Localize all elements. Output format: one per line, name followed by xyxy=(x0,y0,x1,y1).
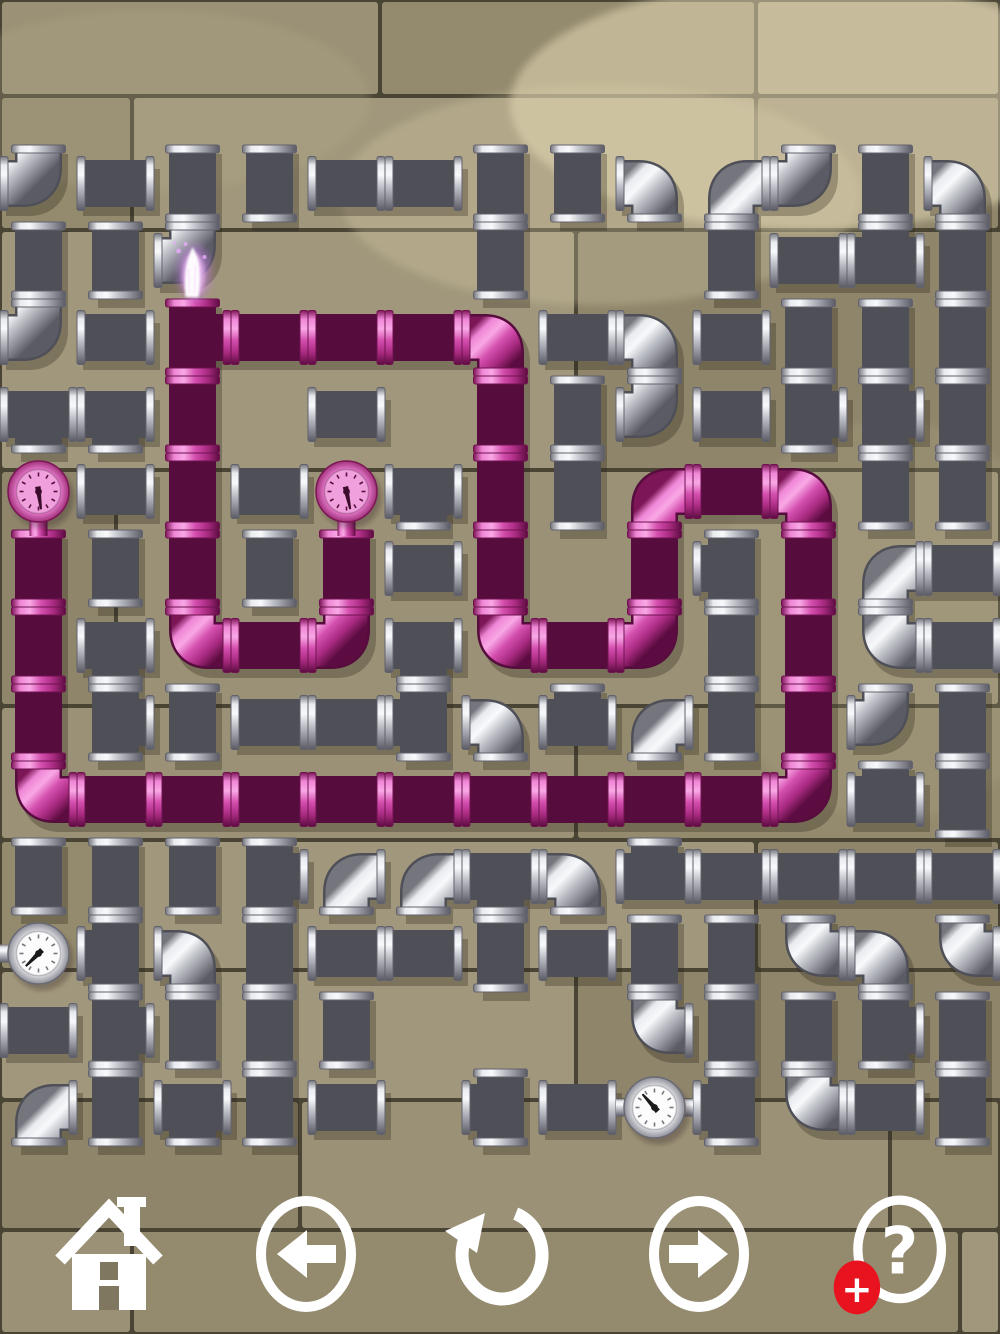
pipe-straight-vertical[interactable] xyxy=(89,838,143,924)
pipe-straight-horizontal[interactable] xyxy=(385,927,468,981)
pipe-straight-horizontal[interactable] xyxy=(770,234,853,288)
pipe-straight-vertical[interactable] xyxy=(936,299,990,385)
arrow-left-icon xyxy=(241,1189,371,1319)
pipe-straight-horizontal[interactable] xyxy=(693,388,776,442)
pipe-straight-horizontal[interactable] xyxy=(308,1081,391,1135)
pipe-straight-vertical[interactable] xyxy=(474,222,528,308)
pipe-straight-horizontal-pink[interactable] xyxy=(385,311,468,365)
pipe-straight-vertical[interactable] xyxy=(166,145,220,231)
pipe-straight-vertical[interactable] xyxy=(936,1069,990,1155)
pipe-straight-horizontal[interactable] xyxy=(847,850,930,904)
pipe-straight-vertical[interactable] xyxy=(243,145,297,231)
pipe-straight-vertical-pink[interactable] xyxy=(782,684,836,770)
pipe-straight-horizontal[interactable] xyxy=(770,850,853,904)
pipe-straight-vertical[interactable] xyxy=(859,453,913,539)
pipe-straight-vertical[interactable] xyxy=(89,530,143,616)
pipe-straight-horizontal-pink[interactable] xyxy=(385,773,468,827)
pipe-straight-vertical[interactable] xyxy=(705,222,759,308)
pipe-straight-vertical[interactable] xyxy=(166,838,220,924)
pipe-straight-vertical[interactable] xyxy=(320,992,374,1078)
pipe-straight-horizontal[interactable] xyxy=(0,1004,83,1058)
pipe-straight-vertical[interactable] xyxy=(782,299,836,385)
plus-glyph: + xyxy=(841,1268,872,1311)
pipe-straight-horizontal-pink[interactable] xyxy=(539,773,622,827)
pipe-straight-horizontal-pink[interactable] xyxy=(308,311,391,365)
pipe-straight-horizontal[interactable] xyxy=(308,388,391,442)
pipe-straight-vertical[interactable] xyxy=(243,530,297,616)
pipe-straight-vertical-pink[interactable] xyxy=(166,453,220,539)
pipe-straight-horizontal[interactable] xyxy=(231,696,314,750)
pipe-straight-vertical[interactable] xyxy=(859,299,913,385)
pipe-straight-horizontal-pink[interactable] xyxy=(231,311,314,365)
pipe-straight-horizontal-pink[interactable] xyxy=(693,773,776,827)
pipe-straight-vertical-pink[interactable] xyxy=(782,607,836,693)
pipe-straight-vertical[interactable] xyxy=(859,145,913,231)
pipe-straight-horizontal-pink[interactable] xyxy=(231,619,314,673)
pipe-straight-horizontal-pink[interactable] xyxy=(77,773,160,827)
pipe-straight-vertical[interactable] xyxy=(474,915,528,1001)
pipe-straight-horizontal[interactable] xyxy=(77,157,160,211)
pipe-straight-vertical[interactable] xyxy=(12,222,66,308)
pipe-straight-horizontal[interactable] xyxy=(693,850,776,904)
pipe-straight-vertical[interactable] xyxy=(936,684,990,770)
arrow-right-icon xyxy=(634,1189,764,1319)
pipe-straight-vertical[interactable] xyxy=(705,915,759,1001)
pipe-straight-vertical[interactable] xyxy=(166,992,220,1078)
pipe-straight-horizontal[interactable] xyxy=(385,542,468,596)
pipe-straight-vertical-pink[interactable] xyxy=(628,530,682,616)
pipe-straight-horizontal[interactable] xyxy=(308,927,391,981)
pipe-straight-vertical-pink[interactable] xyxy=(474,453,528,539)
pipe-straight-horizontal[interactable] xyxy=(77,311,160,365)
pipe-straight-horizontal-pink[interactable] xyxy=(462,773,545,827)
pipe-straight-horizontal[interactable] xyxy=(308,157,391,211)
pipe-straight-vertical[interactable] xyxy=(243,992,297,1078)
pipe-straight-vertical-pink[interactable] xyxy=(782,530,836,616)
pipe-straight-horizontal[interactable] xyxy=(385,157,468,211)
pipe-straight-horizontal[interactable] xyxy=(924,850,1000,904)
pipe-straight-horizontal-pink[interactable] xyxy=(308,773,391,827)
pipe-straight-vertical[interactable] xyxy=(166,684,220,770)
pipe-straight-vertical[interactable] xyxy=(705,992,759,1078)
pipe-straight-vertical[interactable] xyxy=(936,453,990,539)
pipe-straight-vertical[interactable] xyxy=(551,453,605,539)
pipe-straight-vertical[interactable] xyxy=(936,992,990,1078)
pipe-straight-vertical-pink[interactable] xyxy=(166,530,220,616)
pipe-straight-horizontal-pink[interactable] xyxy=(693,465,776,519)
pipe-straight-horizontal[interactable] xyxy=(924,619,1000,673)
pipe-straight-vertical[interactable] xyxy=(243,915,297,1001)
pipe-straight-vertical[interactable] xyxy=(628,915,682,1001)
help-plus-badge[interactable]: + xyxy=(834,1261,880,1315)
pipe-straight-vertical[interactable] xyxy=(936,761,990,847)
pipe-straight-horizontal[interactable] xyxy=(847,1081,930,1135)
pipe-straight-vertical-pink[interactable] xyxy=(12,684,66,770)
previous-button[interactable] xyxy=(241,1184,371,1324)
pipe-straight-vertical-pink[interactable] xyxy=(474,376,528,462)
pipe-straight-vertical[interactable] xyxy=(89,222,143,308)
pipe-straight-vertical[interactable] xyxy=(12,838,66,924)
undo-button[interactable] xyxy=(437,1184,567,1324)
pipe-straight-horizontal-pink[interactable] xyxy=(539,619,622,673)
pipe-straight-horizontal[interactable] xyxy=(924,542,1000,596)
pipe-straight-horizontal[interactable] xyxy=(308,696,391,750)
pipe-straight-vertical[interactable] xyxy=(705,607,759,693)
home-icon xyxy=(54,1194,164,1314)
pipe-straight-vertical[interactable] xyxy=(936,376,990,462)
help-button[interactable]: ? + xyxy=(830,1184,960,1324)
pipe-straight-vertical[interactable] xyxy=(474,145,528,231)
pipe-straight-vertical[interactable] xyxy=(551,376,605,462)
help-glyph: ? xyxy=(881,1215,919,1290)
pipe-straight-horizontal-pink[interactable] xyxy=(616,773,699,827)
toolbar: ? + xyxy=(0,1180,1000,1334)
pipe-straight-vertical-pink[interactable] xyxy=(12,607,66,693)
pipe-straight-horizontal[interactable] xyxy=(77,465,160,519)
pipe-straight-horizontal[interactable] xyxy=(231,465,314,519)
pipe-straight-vertical[interactable] xyxy=(936,222,990,308)
pipe-straight-vertical-pink[interactable] xyxy=(474,530,528,616)
pipe-straight-horizontal[interactable] xyxy=(539,1081,622,1135)
pipe-straight-vertical[interactable] xyxy=(89,1069,143,1155)
pipe-straight-vertical[interactable] xyxy=(705,684,759,770)
pipe-straight-vertical[interactable] xyxy=(551,145,605,231)
pipe-straight-horizontal[interactable] xyxy=(539,927,622,981)
home-button[interactable] xyxy=(44,1184,174,1324)
pipe-straight-vertical-pink[interactable] xyxy=(320,530,374,616)
pipe-straight-vertical[interactable] xyxy=(782,992,836,1078)
puzzle-board xyxy=(0,0,1000,1334)
pipe-straight-horizontal-pink[interactable] xyxy=(231,773,314,827)
undo-icon xyxy=(437,1189,567,1319)
pipe-straight-vertical-pink[interactable] xyxy=(12,530,66,616)
help-icon: ? + xyxy=(830,1184,960,1324)
pipe-straight-horizontal-pink[interactable] xyxy=(154,773,237,827)
next-button[interactable] xyxy=(634,1184,764,1324)
pipe-straight-vertical-pink[interactable] xyxy=(166,376,220,462)
pipe-straight-horizontal[interactable] xyxy=(693,311,776,365)
pipe-straight-horizontal[interactable] xyxy=(539,311,622,365)
pipe-straight-vertical[interactable] xyxy=(243,1069,297,1155)
